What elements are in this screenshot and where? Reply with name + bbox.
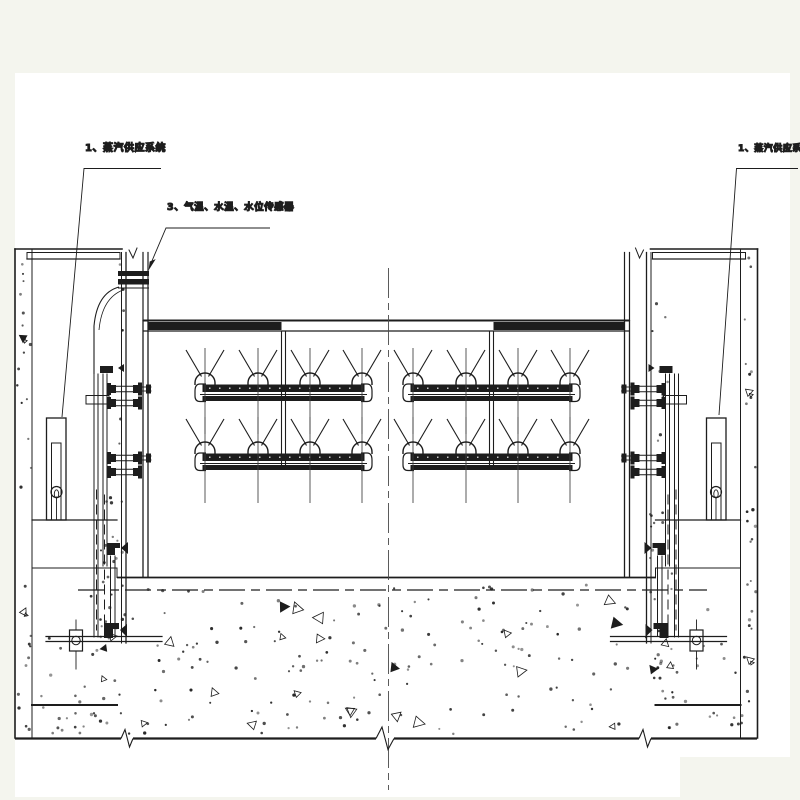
gate-section-drawing: 1、蒸汽供应系统 3、气温、水温、水位传感器 1、蒸汽供应系统 <box>0 0 800 800</box>
drawing-canvas <box>15 73 790 797</box>
label-steam-supply-left: 1、蒸汽供应系统 <box>85 141 166 154</box>
drawing-page: 1、蒸汽供应系统 3、气温、水温、水位传感器 1、蒸汽供应系统 <box>0 0 800 800</box>
label-sensors: 3、气温、水温、水位传感器 <box>167 201 294 213</box>
steam-manifold-right <box>494 322 625 330</box>
label-steam-supply-right: 1、蒸汽供应系统 <box>738 142 800 154</box>
steam-manifold-left <box>148 322 282 330</box>
